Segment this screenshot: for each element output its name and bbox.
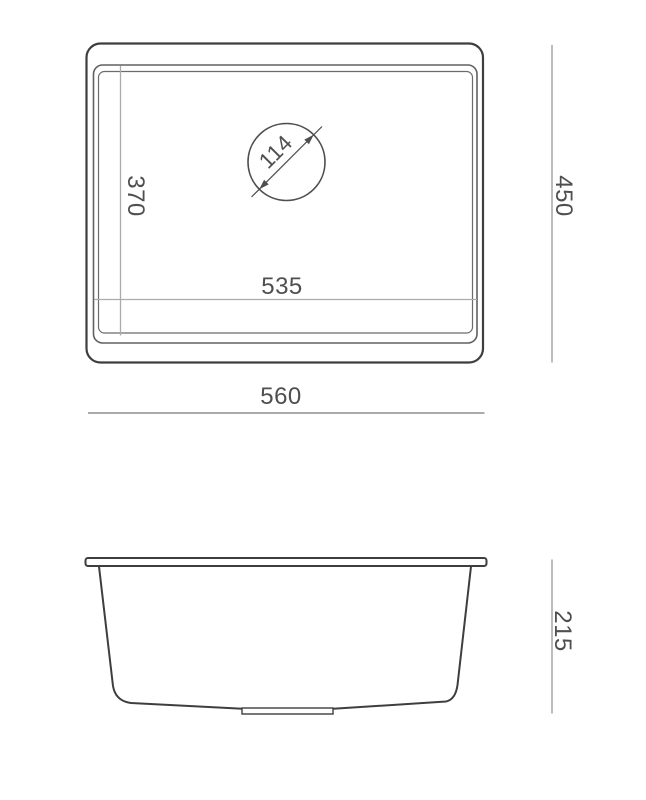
bowl-depth-label: 370 xyxy=(121,175,149,217)
side-view xyxy=(86,558,487,714)
top-view-rim-outer-line xyxy=(94,65,478,343)
side-view-rim-flange xyxy=(86,558,487,566)
side-view-bowl-outline xyxy=(99,567,471,709)
sink-technical-drawing: 560 450 535 370 114 215 xyxy=(0,0,646,800)
bowl-width-label: 535 xyxy=(261,273,303,301)
side-view-drain-flange xyxy=(242,708,333,714)
overall-height-label: 215 xyxy=(548,610,576,652)
overall-depth-label: 450 xyxy=(549,175,577,217)
drawing-linework xyxy=(0,0,646,800)
overall-width-label: 560 xyxy=(260,383,302,411)
